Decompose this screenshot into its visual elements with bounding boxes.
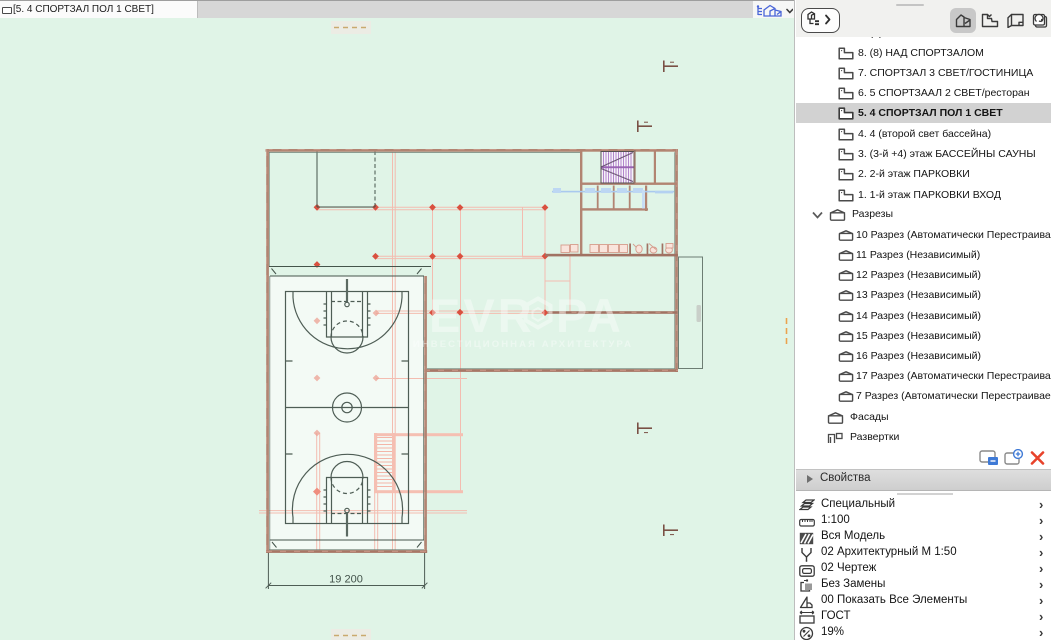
svg-text:19 200: 19 200 xyxy=(329,574,363,586)
svg-text:ИНВЕСТИЦИОННАЯ АРХИТЕКТУРА: ИНВЕСТИЦИОННАЯ АРХИТЕКТУРА xyxy=(413,339,633,350)
svg-text:PA: PA xyxy=(556,289,624,342)
svg-text:EVR: EVR xyxy=(429,289,535,342)
